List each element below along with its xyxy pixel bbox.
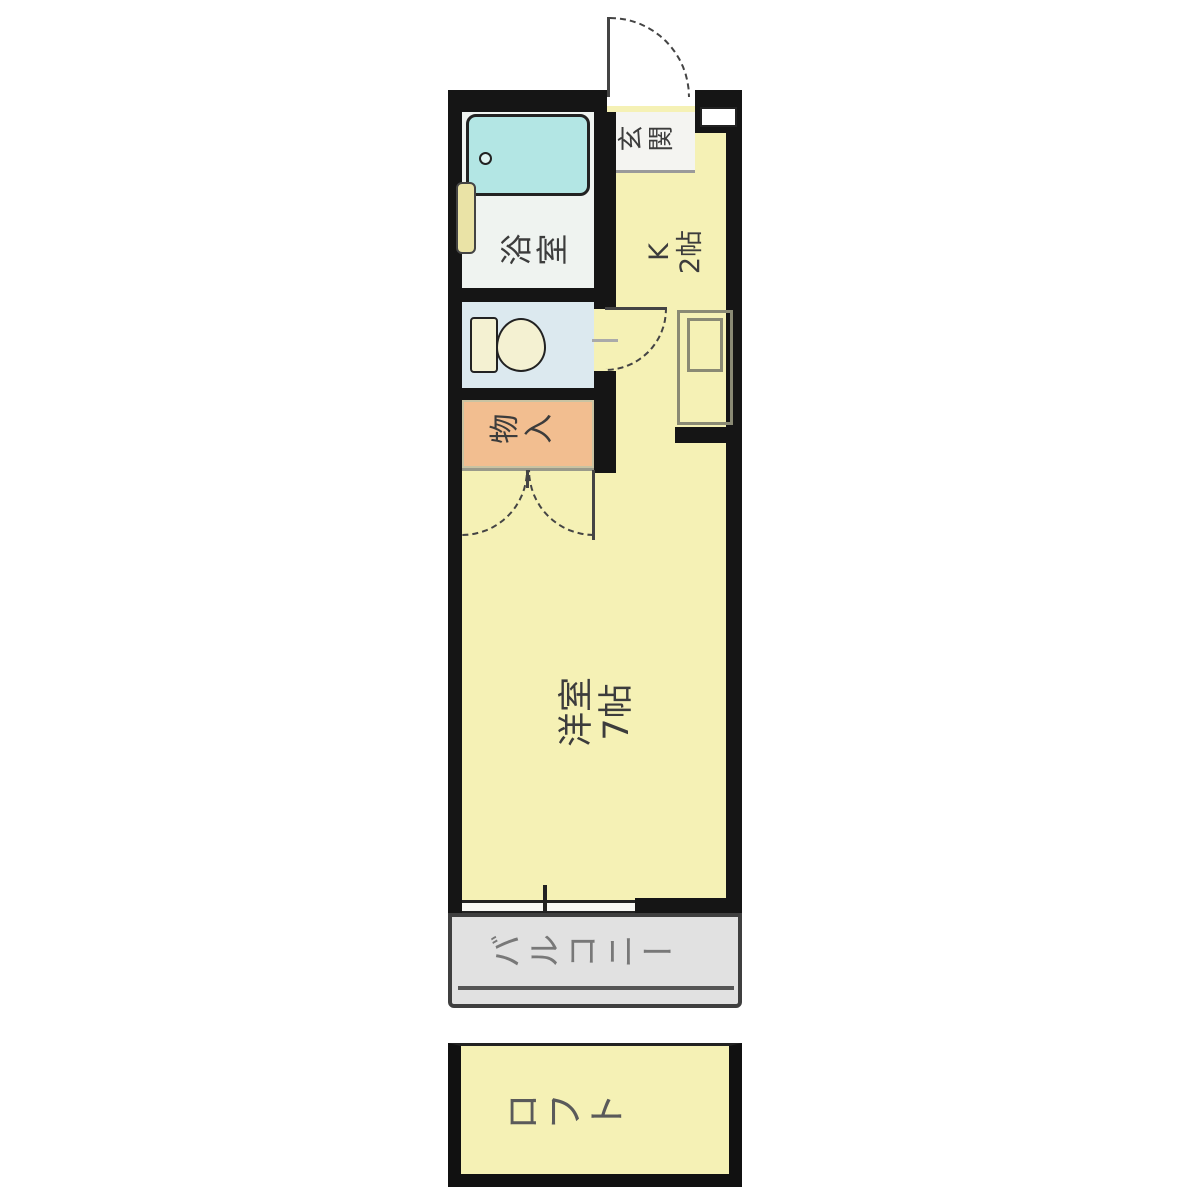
toilet-bowl-icon xyxy=(496,318,546,372)
main-room-label-line1: 洋室 xyxy=(557,677,597,747)
wall-right xyxy=(726,90,742,915)
wall-top-left xyxy=(448,90,607,112)
bathroom-window-icon xyxy=(456,182,476,254)
balcony-label: バルコニー xyxy=(488,935,687,974)
window-top-right-icon xyxy=(700,107,737,127)
kitchen-label-line2: 2帖 xyxy=(675,230,706,274)
wall-bathroom-toilet xyxy=(462,288,616,302)
entrance-label-text: 玄関 xyxy=(617,127,677,157)
balcony-window-center-tick xyxy=(543,885,547,913)
wall-mid-vertical-lower xyxy=(594,371,616,473)
balcony-window-icon xyxy=(462,900,635,914)
balcony-label-text: バルコニー xyxy=(488,935,678,974)
kitchen-sink-icon xyxy=(687,318,723,372)
kitchen-label-line1: K xyxy=(644,230,675,274)
wall-toilet-storage xyxy=(462,388,594,400)
storage-label: 物入 xyxy=(489,416,566,451)
loft-label-text: ロフト xyxy=(503,1094,629,1138)
storage-door-right-panel xyxy=(592,470,595,540)
main-room-label-line2: 7帖 xyxy=(597,677,637,747)
balcony-rail-line xyxy=(458,986,734,990)
bathtub-drain-icon xyxy=(479,152,492,165)
wall-mid-vertical-upper xyxy=(594,112,616,309)
entrance-door-swing-arc-icon xyxy=(610,17,690,97)
wall-kitchen-stub xyxy=(675,427,742,443)
main-room-label: 洋室 7帖 xyxy=(557,677,638,747)
bathroom-label-text: 浴室 xyxy=(499,234,571,271)
kitchen-label: K 2帖 xyxy=(644,230,706,274)
storage-label-text: 物入 xyxy=(489,416,557,451)
toilet-tank-icon xyxy=(470,317,498,373)
bathroom-label: 浴室 xyxy=(499,234,579,271)
loft-label: ロフト xyxy=(503,1094,639,1138)
entrance-label: 玄関 xyxy=(617,127,685,157)
entrance-step-line xyxy=(616,170,695,173)
floor-plan: 玄関 浴室 K 2帖 物入 洋室 7帖 バルコニー ロフト xyxy=(0,0,1200,1200)
